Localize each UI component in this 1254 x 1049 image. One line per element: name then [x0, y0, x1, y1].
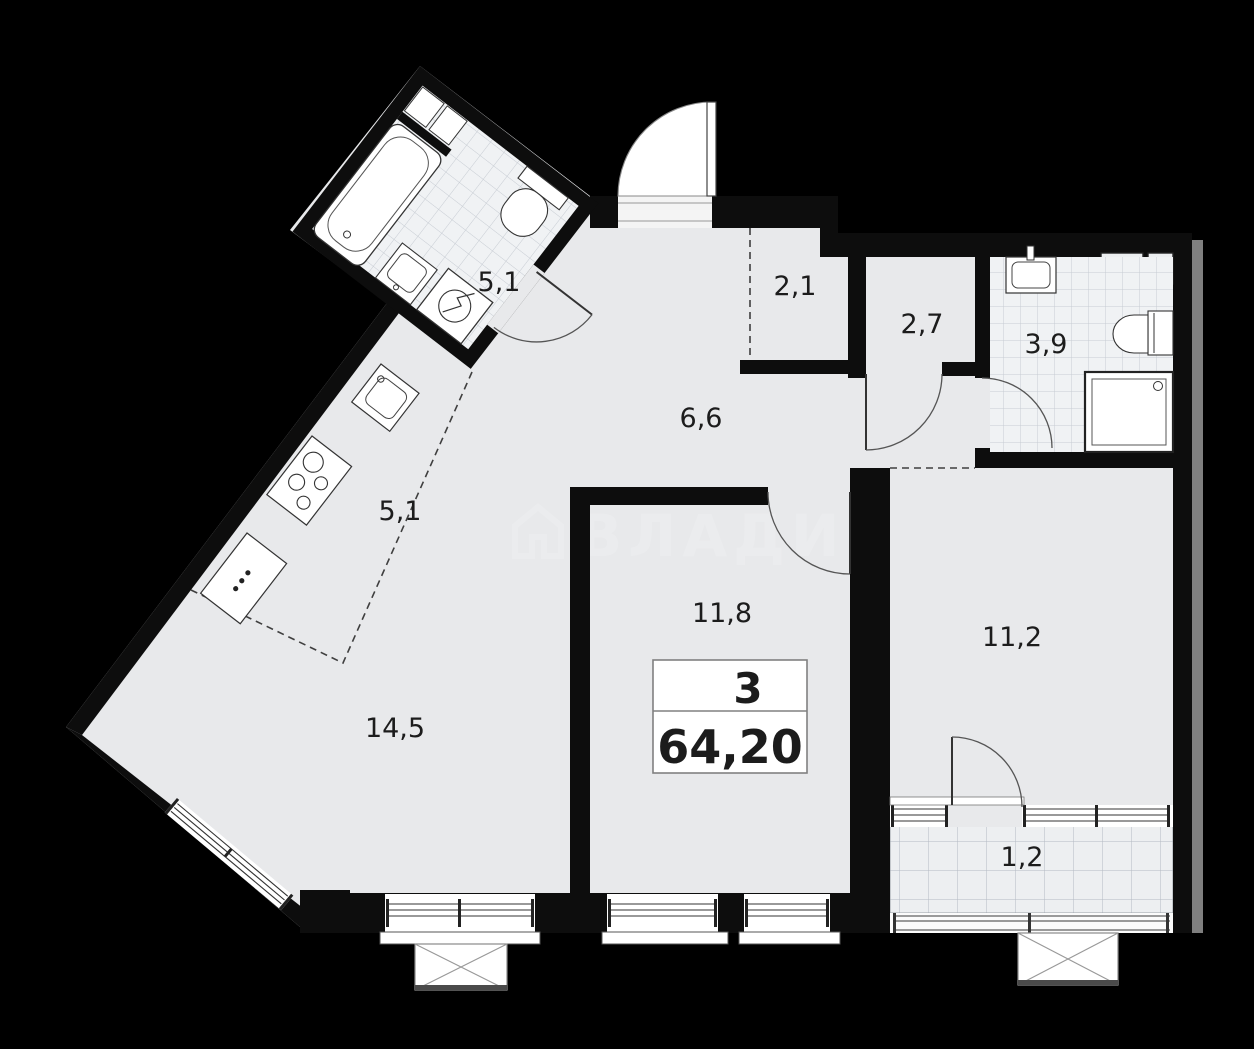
room-area-label-wardrobe: 2,1: [774, 271, 817, 302]
ac-unit-icon-2: [1018, 933, 1118, 985]
bedroom-window-2: [739, 894, 840, 944]
floor-plan-canvas: ВЛАДИС: [0, 0, 1254, 1049]
room-area-label-kitchen: 5,1: [379, 496, 422, 527]
unit-rooms-count: 3: [733, 664, 762, 713]
room-area-label-bedroom: 11,8: [692, 598, 752, 629]
living-room-window: [380, 894, 540, 944]
ac-unit-icon: [415, 944, 507, 990]
entrance-door-leaf: [707, 102, 716, 196]
room-area-label-bathroom-small: 5,1: [478, 267, 521, 298]
room-area-label-hallway: 6,6: [680, 403, 723, 434]
unit-info-box: 3 64,20: [653, 660, 807, 774]
shower-icon: [1085, 372, 1173, 452]
room-area-label-bedroom2: 11,2: [982, 622, 1042, 653]
floor-plan: ВЛАДИС: [0, 0, 1254, 1049]
wall-shadow: [1192, 240, 1203, 933]
balcony-door-opening: [948, 805, 1022, 827]
watermark-text: ВЛАДИС: [578, 502, 894, 570]
unit-total-area: 64,20: [657, 720, 803, 774]
bathroom-block: [982, 246, 1173, 452]
room-area-label-bathroom: 3,9: [1025, 329, 1068, 360]
room-area-label-corridor: 2,7: [901, 309, 944, 340]
room-area-label-living-room: 14,5: [365, 713, 425, 744]
bedroom-window-1: [602, 894, 728, 944]
room-area-label-balcony: 1,2: [1001, 842, 1044, 873]
